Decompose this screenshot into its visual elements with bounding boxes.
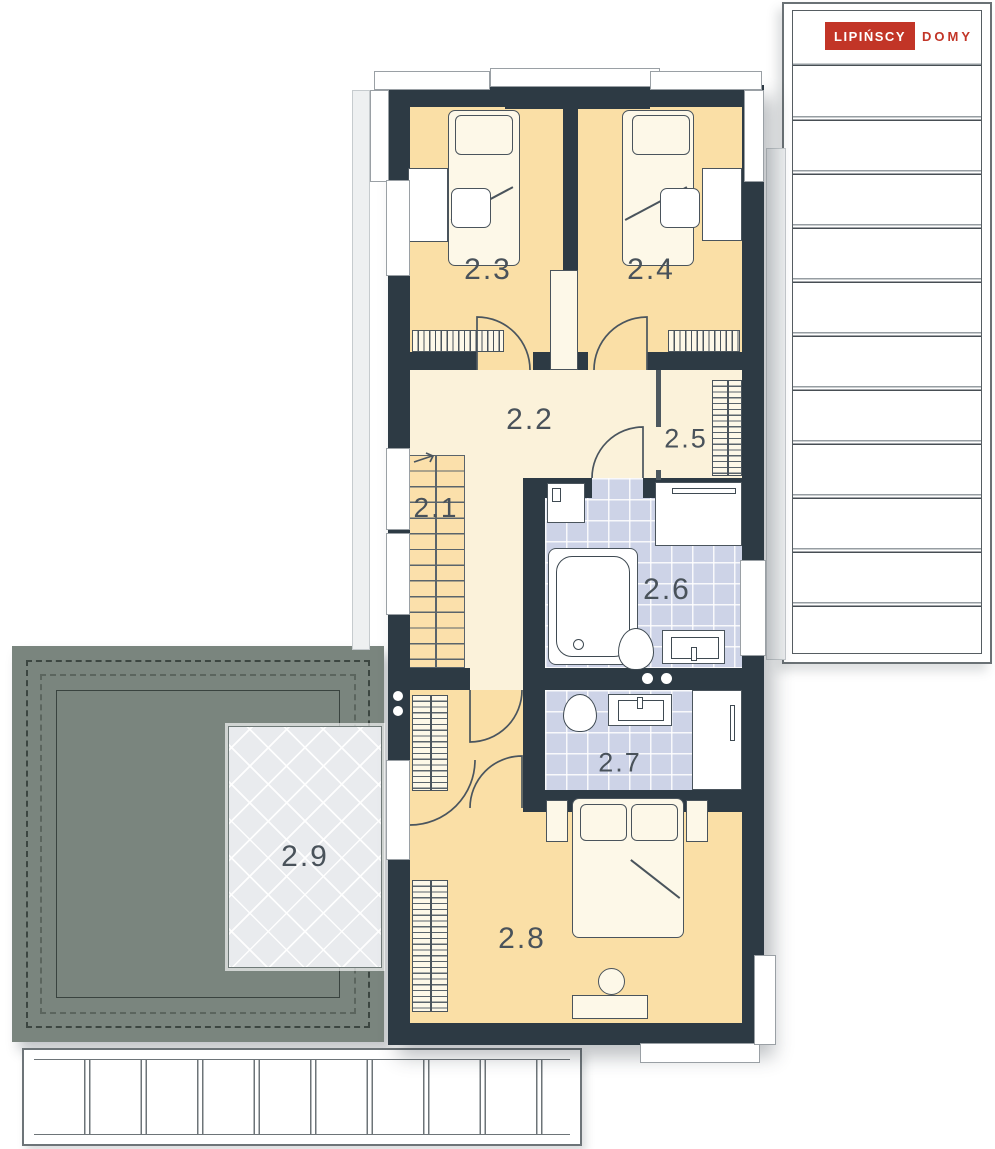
- console-table: [572, 995, 648, 1019]
- toilet: [618, 628, 654, 670]
- roof-panel-inner: LIPIŃSCY DOMY: [792, 10, 982, 654]
- wall-closet25-2: [656, 470, 661, 480]
- logo-primary: LIPIŃSCY: [825, 22, 915, 50]
- wall-dot: [642, 673, 653, 684]
- upper-floor-plan: 2.1 2.2 2.3 2.4 2.5 2.6 2.7 2.8: [370, 68, 790, 1068]
- wall-bath6-west: [523, 478, 545, 690]
- nightstand: [546, 800, 568, 842]
- room-label-2-1: 2.1: [414, 492, 459, 524]
- radiator: [668, 330, 740, 352]
- duct-shaft: [550, 270, 578, 370]
- room-label-2-4: 2.4: [627, 253, 675, 287]
- corner-window-nw-v: [370, 90, 389, 182]
- wall-dot: [661, 673, 672, 684]
- desk: [702, 168, 742, 241]
- eave-strip-left: [352, 90, 370, 650]
- wall-south: [388, 1023, 764, 1045]
- chair: [451, 188, 491, 228]
- corner-window-nw-h: [374, 71, 490, 90]
- window-west-2: [386, 448, 410, 530]
- roof-slope-zone: [655, 482, 742, 546]
- shower: [692, 690, 742, 790]
- room-label-2-3: 2.3: [464, 253, 512, 287]
- wardrobe: [412, 695, 448, 791]
- wardrobe: [712, 380, 742, 476]
- desk: [408, 168, 448, 242]
- room-label-2-6: 2.6: [643, 573, 691, 607]
- corner-window-ne-v: [744, 90, 764, 182]
- chimney-block: [505, 85, 650, 109]
- floor-plan-sheet: 2.9 LIPIŃSCY DOMY: [0, 0, 995, 1149]
- corner-window-ne-h: [650, 71, 762, 90]
- room-label-2-2: 2.2: [506, 403, 554, 437]
- wall-dot: [393, 691, 403, 701]
- window-west-1: [386, 180, 410, 276]
- terrace-glazing: 2.9: [228, 726, 382, 968]
- window-west-3: [386, 533, 410, 615]
- lipinscy-domy-logo: LIPIŃSCY DOMY: [825, 22, 973, 50]
- terrace-door: [386, 760, 410, 860]
- wardrobe: [412, 880, 448, 1012]
- radiator: [412, 330, 504, 352]
- railing-posts: [34, 1059, 570, 1135]
- wall-bedrooms-south-1: [410, 352, 477, 370]
- room-label-2-8: 2.8: [498, 922, 546, 956]
- wall-hall-bedroom28: [410, 668, 470, 690]
- roof-terrace: 2.9: [12, 646, 384, 1042]
- wall-bedrooms-south-3: [647, 352, 742, 370]
- chair: [660, 188, 700, 228]
- roof-panel: LIPIŃSCY DOMY: [782, 2, 992, 664]
- logo-band: LIPIŃSCY DOMY: [793, 11, 981, 66]
- washbasin-cabinet: [608, 694, 672, 726]
- logo-secondary: DOMY: [922, 29, 973, 44]
- washbasin-cabinet: [662, 630, 725, 664]
- wall-bath6-south: [523, 668, 742, 690]
- double-bed: [572, 798, 684, 938]
- washing-machine: [547, 483, 585, 523]
- staircase: [405, 455, 465, 668]
- room-label-2-9: 2.9: [281, 840, 329, 874]
- stool: [598, 968, 625, 995]
- nightstand: [686, 800, 708, 842]
- toilet: [563, 694, 597, 732]
- room-label-2-7: 2.7: [598, 748, 642, 779]
- room-label-2-5: 2.5: [664, 424, 708, 455]
- wall-closet25-1: [656, 370, 661, 427]
- wall-dot: [393, 706, 403, 716]
- eave-strip-right: [766, 148, 786, 660]
- skylight-window: [490, 68, 660, 87]
- window-east: [740, 560, 766, 656]
- roof-sheathing-lines: [793, 67, 981, 653]
- corner-window-se-v: [754, 955, 776, 1045]
- corner-window-se-h: [640, 1043, 760, 1063]
